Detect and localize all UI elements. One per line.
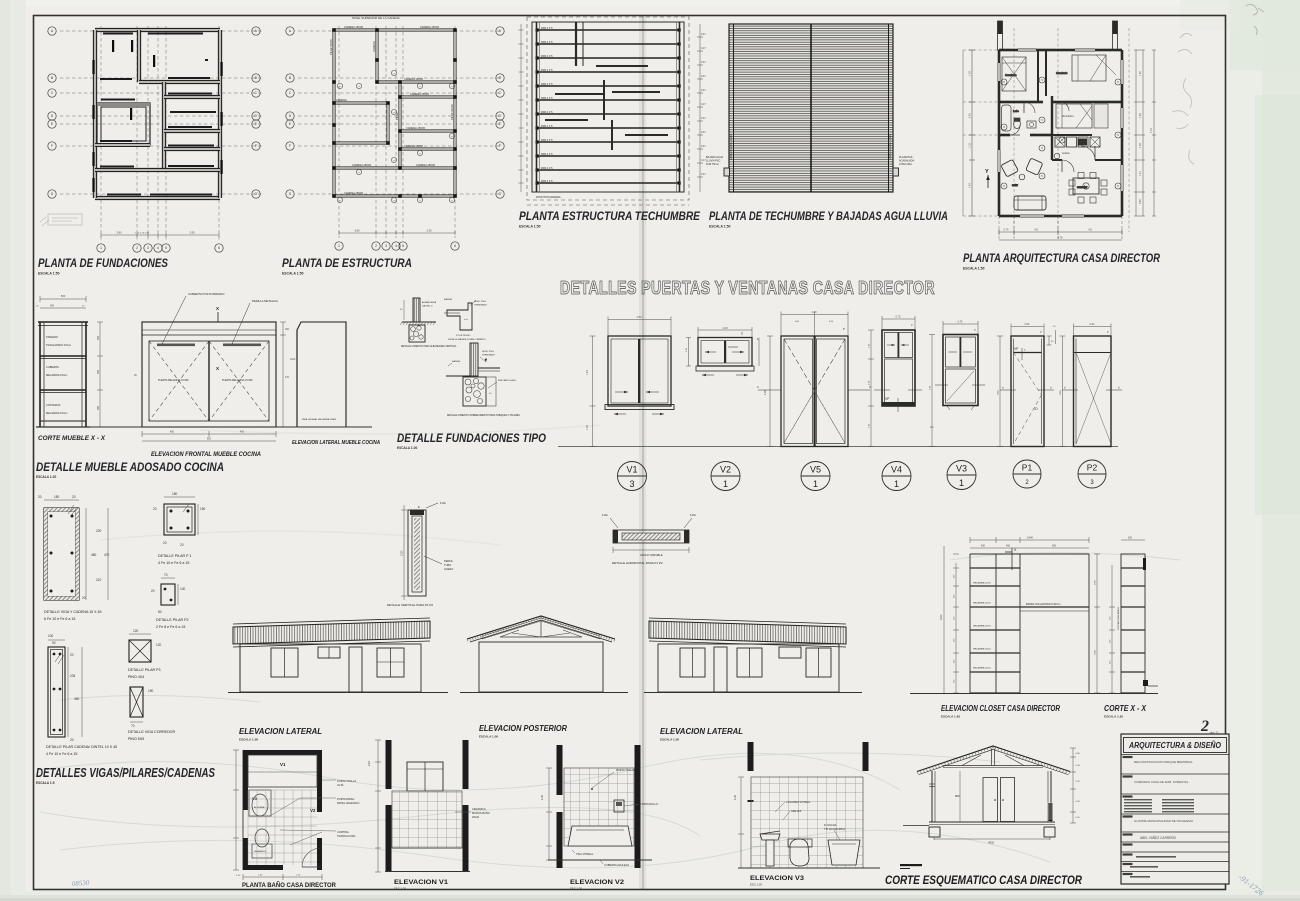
svg-text:0.47: 0.47 <box>701 61 706 64</box>
svg-text:DETALLE VIGA CORREDOR: DETALLE VIGA CORREDOR <box>128 730 175 734</box>
svg-text:ESCALA 1:50: ESCALA 1:50 <box>38 272 60 276</box>
svg-text:ELEVACION FRONTAL MUEBLE COCIN: ELEVACION FRONTAL MUEBLE COCINA <box>151 452 261 458</box>
svg-text:PERILLA METALICA: PERILLA METALICA <box>252 299 278 303</box>
svg-text:150: 150 <box>200 507 206 511</box>
svg-text:2.95: 2.95 <box>189 231 195 235</box>
svg-text:ABEL YAÑEZ CARREÑO: ABEL YAÑEZ CARREÑO <box>1140 835 1177 840</box>
svg-text:TABLERO: TABLERO <box>46 335 58 339</box>
svg-text:CUBIERTA AZULEJO: CUBIERTA AZULEJO <box>604 863 629 867</box>
svg-text:RADIER: RADIER <box>452 360 461 363</box>
svg-text:190: 190 <box>148 689 154 693</box>
svg-text:2: 2 <box>1200 718 1209 735</box>
svg-text:PAR 2 X 5: PAR 2 X 5 <box>541 69 553 72</box>
svg-text:CADENA 15X45: CADENA 15X45 <box>344 25 363 29</box>
svg-text:PINO 5X5: PINO 5X5 <box>128 737 144 741</box>
svg-text:90: 90 <box>52 641 56 645</box>
svg-text:P: P <box>843 327 845 331</box>
svg-text:900: 900 <box>1052 545 1057 548</box>
svg-text:VP: VP <box>1014 347 1018 351</box>
svg-text:ELEVACION V1: ELEVACION V1 <box>394 880 449 886</box>
svg-text:0.35x3.66m: 0.35x3.66m <box>899 163 912 166</box>
svg-text:900: 900 <box>207 438 212 441</box>
svg-text:ILUSTRE MUNICIPALIDAD DE PI: ILUSTRE MUNICIPALIDAD DE PICHILEMU <box>1134 819 1193 823</box>
svg-text:POLIETILENO: POLIETILENO <box>456 335 471 337</box>
svg-text:150: 150 <box>172 492 178 496</box>
svg-text:PAR 2 X 5: PAR 2 X 5 <box>541 153 553 156</box>
svg-text:A': A' <box>255 29 258 33</box>
svg-text:350: 350 <box>97 405 100 410</box>
svg-text:MELAMINA 15mm: MELAMINA 15mm <box>46 373 67 377</box>
svg-text:comedor: comedor <box>1077 185 1087 189</box>
svg-text:PLANTA BAÑO CASA DIRECTOR: PLANTA BAÑO CASA DIRECTOR <box>242 882 337 889</box>
svg-text:CADENA 15X45: CADENA 15X45 <box>406 126 425 130</box>
svg-text:20: 20 <box>180 543 184 547</box>
svg-text:JGTA: JGTA <box>337 783 344 787</box>
svg-text:2: 2 <box>741 332 743 336</box>
svg-text:baño: baño <box>1013 109 1019 113</box>
svg-text:1: 1 <box>723 479 728 489</box>
svg-text:E: E <box>418 505 420 509</box>
svg-text:PILAR 15X15: PILAR 15X15 <box>450 104 454 120</box>
svg-text:450: 450 <box>170 431 175 434</box>
svg-text:1050: 1050 <box>1095 579 1097 585</box>
svg-text:DETALLE PILAR P3: DETALLE PILAR P3 <box>128 668 161 672</box>
svg-text:cocina: cocina <box>1062 151 1070 155</box>
svg-text:FRONTON MADERA: FRONTON MADERA <box>536 195 561 199</box>
svg-text:NIVEL PISO: NIVEL PISO <box>482 351 494 353</box>
svg-text:0.47: 0.47 <box>701 47 706 50</box>
svg-text:PAR 2 X 5: PAR 2 X 5 <box>541 111 553 114</box>
svg-text:70: 70 <box>164 573 168 577</box>
svg-text:1: 1 <box>338 244 340 248</box>
svg-text:450: 450 <box>240 431 245 434</box>
svg-text:1.60: 1.60 <box>811 310 817 314</box>
svg-text:V3: V3 <box>956 464 967 474</box>
svg-text:1.50: 1.50 <box>636 315 642 319</box>
svg-text:DETALLE VERTICAL PARA P1 P2: DETALLE VERTICAL PARA P1 P2 <box>387 603 433 607</box>
svg-text:50: 50 <box>158 610 162 614</box>
svg-text:PAR 2 X 5: PAR 2 X 5 <box>541 83 553 86</box>
svg-text:6 Fe 10 e Fe 6 a 15: 6 Fe 10 e Fe 6 a 15 <box>44 617 75 621</box>
svg-text:B: B <box>51 76 53 80</box>
svg-text:ARQUITECTURA & DISEÑO: ARQUITECTURA & DISEÑO <box>1128 741 1221 750</box>
svg-text:COSTADO MELAMINA: COSTADO MELAMINA <box>1117 607 1120 630</box>
svg-text:CADENA: CADENA <box>372 41 376 52</box>
svg-text:ESCALA 1:50: ESCALA 1:50 <box>519 225 541 229</box>
svg-text:X: X <box>216 306 219 311</box>
svg-text:E: E <box>289 122 291 126</box>
svg-text:PERFIL: PERFIL <box>444 559 454 563</box>
svg-text:LAVAMANOS: LAVAMANOS <box>254 850 267 853</box>
svg-text:CORTE MUEBLE X - X: CORTE MUEBLE X - X <box>38 435 106 442</box>
svg-text:4.8: 4.8 <box>1034 229 1038 232</box>
svg-text:0.47: 0.47 <box>701 145 706 148</box>
svg-text:CADENA 15X45: CADENA 15X45 <box>410 92 429 96</box>
svg-text:T.B. ECONOMICA: T.B. ECONOMICA <box>824 827 845 831</box>
svg-text:470: 470 <box>285 376 290 379</box>
svg-text:DETALLE PILAR CADENA/ DINTEL: DETALLE PILAR CADENA/ DINTEL 10 X 45 <box>46 745 117 749</box>
svg-text:DETALLE PILAR P2: DETALLE PILAR P2 <box>156 618 189 622</box>
svg-text:220: 220 <box>96 529 102 533</box>
svg-text:2.95: 2.95 <box>426 229 432 233</box>
svg-text:MELAMINA 15mm: MELAMINA 15mm <box>973 648 991 651</box>
svg-text:V1: V1 <box>626 465 637 475</box>
svg-text:ESCALA 1:20: ESCALA 1:20 <box>941 715 960 719</box>
svg-text:ELEVACION CLOSET CASA DIRECTOR: ELEVACION CLOSET CASA DIRECTOR <box>941 704 1060 713</box>
svg-text:D': D' <box>255 114 258 118</box>
svg-text:PLANTA DE TECHUMBRE Y BAJADAS: PLANTA DE TECHUMBRE Y BAJADAS AGUA LLUVI… <box>709 211 948 223</box>
svg-text:TERMINADO: TERMINADO <box>474 304 487 307</box>
svg-text:1.20: 1.20 <box>540 794 544 800</box>
svg-text:ESC 1:20: ESC 1:20 <box>394 887 406 891</box>
svg-text:dormitorio: dormitorio <box>1056 71 1068 75</box>
svg-text:1.40: 1.40 <box>969 183 972 188</box>
svg-text:PAR 2 X 5: PAR 2 X 5 <box>541 139 553 142</box>
svg-text:TAPA LATERAL MELAMINA 15MM: TAPA LATERAL MELAMINA 15MM <box>302 418 336 421</box>
svg-text:PILAR: PILAR <box>395 112 399 120</box>
svg-text:0.47: 0.47 <box>701 131 706 134</box>
svg-text:ELEVACION POSTERIOR: ELEVACION POSTERIOR <box>479 724 567 733</box>
svg-text:PAR 2 X 5: PAR 2 X 5 <box>541 125 553 128</box>
svg-text:DETALLE PILAR P 1: DETALLE PILAR P 1 <box>158 554 191 558</box>
svg-text:TUBO: TUBO <box>444 563 451 567</box>
svg-text:CORTINA: CORTINA <box>337 830 349 834</box>
svg-text:20: 20 <box>70 653 74 657</box>
svg-text:1.10 0.75 0.96: 1.10 0.75 0.96 <box>135 233 150 235</box>
svg-text:CADENA: CADENA <box>336 98 347 102</box>
svg-text:350: 350 <box>97 369 100 374</box>
svg-text:08530: 08530 <box>72 879 91 888</box>
svg-text:ESC 1:20: ESC 1:20 <box>570 887 582 891</box>
svg-text:0.70: 0.70 <box>896 316 901 319</box>
svg-text:PAR 2 X 5: PAR 2 X 5 <box>541 41 553 44</box>
svg-text:PLANTA ESTRUCTURA TECHUMBRE: PLANTA ESTRUCTURA TECHUMBRE <box>519 211 700 223</box>
svg-text:0.90: 0.90 <box>1090 323 1095 326</box>
svg-text:ESCALA 1:50: ESCALA 1:50 <box>963 267 985 271</box>
svg-text:P2: P2 <box>1087 463 1098 473</box>
svg-text:CADENA 15X45: CADENA 15X45 <box>404 77 423 81</box>
svg-text:PORTA TOALLA: PORTA TOALLA <box>337 779 356 783</box>
svg-text:CADENA 15X45: CADENA 15X45 <box>404 144 423 148</box>
svg-text:E': E' <box>255 122 258 126</box>
svg-text:20: 20 <box>153 507 157 511</box>
svg-text:2.10: 2.10 <box>367 760 371 766</box>
svg-text:0.47: 0.47 <box>701 117 706 120</box>
svg-text:COLUMNA VITREAL: COLUMNA VITREAL <box>786 800 811 804</box>
svg-text:VP: VP <box>885 397 889 401</box>
svg-text:PAR 2 X 5: PAR 2 X 5 <box>541 167 553 170</box>
svg-text:120: 120 <box>156 643 162 647</box>
svg-text:DETALLE CIMIENTO PARA ALBANILE: DETALLE CIMIENTO PARA ALBANILERIA VERTIC… <box>401 345 457 348</box>
svg-text:0.94: 0.94 <box>1139 199 1142 204</box>
svg-text:CADENA 15X45: CADENA 15X45 <box>352 163 371 167</box>
svg-text:2: 2 <box>136 246 138 250</box>
svg-text:ESCALA 1:20: ESCALA 1:20 <box>397 446 417 450</box>
svg-text:/O: /O <box>1034 407 1038 411</box>
svg-text:V3: V3 <box>252 796 258 801</box>
svg-text:RECONSTRUCCION PARQUE MEMORIAL: RECONSTRUCCION PARQUE MEMORIAL <box>1134 760 1193 764</box>
svg-text:DETALLE RADIER SOBRE CIMIENTO: DETALLE RADIER SOBRE CIMIENTO <box>448 338 486 341</box>
svg-text:450: 450 <box>74 697 80 701</box>
svg-text:ESCALA 1:50: ESCALA 1:50 <box>239 738 258 742</box>
svg-text:ELEVACION LATERAL: ELEVACION LATERAL <box>239 727 322 736</box>
svg-text:ELEVACION V3: ELEVACION V3 <box>750 876 805 882</box>
svg-text:BARRA COLGADORA D=32mm: BARRA COLGADORA D=32mm <box>1026 603 1060 606</box>
svg-text:1.00: 1.00 <box>586 425 589 430</box>
svg-text:MELAMINA 15mm: MELAMINA 15mm <box>973 667 991 670</box>
svg-text:ESCALA 1:50: ESCALA 1:50 <box>660 738 679 742</box>
svg-text:100: 100 <box>48 634 54 638</box>
svg-text:PUERTA MELAMINA 15 MM: PUERTA MELAMINA 15 MM <box>158 379 188 382</box>
svg-text:20: 20 <box>72 495 76 499</box>
svg-text:TRASLAPADO 15mm: TRASLAPADO 15mm <box>46 343 71 347</box>
svg-text:1: 1 <box>894 479 899 489</box>
svg-text:PAR 2 X 5: PAR 2 X 5 <box>541 27 553 30</box>
svg-text:TERMINADO: TERMINADO <box>482 354 495 357</box>
svg-text:PAPEL HIGIENICO: PAPEL HIGIENICO <box>337 801 359 805</box>
svg-text:RADIER: RADIER <box>444 298 453 301</box>
svg-text:CUBIERTA POSTFORMADO: CUBIERTA POSTFORMADO <box>188 292 225 296</box>
svg-text:CORTE ESQUEMATICO CASA DIRECTO: CORTE ESQUEMATICO CASA DIRECTOR <box>885 873 1082 887</box>
svg-text:6: 6 <box>454 244 456 248</box>
svg-text:E': E' <box>499 122 502 126</box>
svg-text:1.25: 1.25 <box>1139 113 1142 118</box>
svg-text:1: 1 <box>100 246 102 250</box>
svg-text:1040: 1040 <box>290 358 296 361</box>
svg-text:Y: Y <box>985 169 989 175</box>
svg-text:1.15: 1.15 <box>969 143 972 148</box>
svg-text:dormitorio: dormitorio <box>1062 114 1074 118</box>
svg-text:800: 800 <box>955 794 960 798</box>
svg-text:1: 1 <box>813 479 818 489</box>
svg-text:CADENA 15X45: CADENA 15X45 <box>420 25 439 29</box>
svg-text:ACERO: ACERO <box>444 567 453 571</box>
svg-text:V4: V4 <box>891 465 902 475</box>
svg-text:9.78: 9.78 <box>1058 237 1063 240</box>
svg-text:COSTADOS: COSTADOS <box>46 403 61 407</box>
svg-text:1640: 1640 <box>1027 536 1033 540</box>
svg-text:ESC 1:20: ESC 1:20 <box>750 883 762 887</box>
svg-text:PAR 2 X 5: PAR 2 X 5 <box>541 97 553 100</box>
svg-text:CADENA 15X45: CADENA 15X45 <box>344 191 363 195</box>
svg-text:MELAMINA 15mm: MELAMINA 15mm <box>973 582 991 585</box>
svg-text:350: 350 <box>97 335 100 340</box>
svg-text:PORTA PAPEL: PORTA PAPEL <box>337 797 355 801</box>
svg-text:2100: 2100 <box>401 550 404 556</box>
svg-text:B: B <box>289 76 291 80</box>
svg-text:3: 3 <box>385 244 387 248</box>
svg-text:1.52: 1.52 <box>1139 71 1142 76</box>
svg-text:20: 20 <box>70 738 74 742</box>
svg-text:0.75: 0.75 <box>958 321 963 324</box>
svg-text:V2: V2 <box>720 465 731 475</box>
svg-text:C': C' <box>499 91 502 95</box>
svg-text:F': F' <box>255 144 258 148</box>
svg-text:4950: 4950 <box>988 841 995 845</box>
svg-text:2: 2 <box>375 244 377 248</box>
svg-text:PLANTA ARQUITECTURA CASA DIREC: PLANTA ARQUITECTURA CASA DIRECTOR <box>963 253 1161 265</box>
svg-text:500: 500 <box>61 294 66 298</box>
svg-text:ANCHO VARIABLE: ANCHO VARIABLE <box>640 553 663 557</box>
svg-text:FIJA: FIJA <box>602 513 608 517</box>
svg-text:D': D' <box>499 114 502 118</box>
svg-text:2m: 2m <box>930 425 934 429</box>
svg-text:CANAL AGUAS LLUVIA: CANAL AGUAS LLUVIA <box>730 134 733 160</box>
svg-text:0.47: 0.47 <box>701 75 706 78</box>
svg-text:20: 20 <box>163 541 167 545</box>
svg-text:C: C <box>757 385 759 389</box>
svg-text:CERAMICA: CERAMICA <box>472 807 486 811</box>
svg-text:20: 20 <box>38 495 42 499</box>
svg-text:CORTE X - X: CORTE X - X <box>1104 704 1147 713</box>
svg-text:ALGEBRA: ALGEBRA <box>254 806 265 809</box>
svg-text:20: 20 <box>82 596 86 600</box>
svg-text:20x20: 20x20 <box>472 815 480 819</box>
svg-text:ESCALA 1:5: ESCALA 1:5 <box>36 781 55 785</box>
svg-text:A': A' <box>499 29 502 33</box>
svg-text:ESCALA 1:20: ESCALA 1:20 <box>36 475 56 479</box>
svg-text:X: X <box>216 366 219 371</box>
svg-text:PAR 2 X 5: PAR 2 X 5 <box>541 180 553 183</box>
svg-text:VIVIENDAS CASA DE ADM. FORES: VIVIENDAS CASA DE ADM. FORESTAL <box>1134 780 1189 784</box>
svg-text:20: 20 <box>151 589 155 593</box>
svg-text:DETALLE MUEBLE ADOSADO COCINA: DETALLE MUEBLE ADOSADO COCINA <box>36 460 224 474</box>
svg-text:150: 150 <box>54 495 60 499</box>
svg-text:NIVEL PISO: NIVEL PISO <box>474 301 486 303</box>
svg-text:ELEVACION LATERAL: ELEVACION LATERAL <box>660 727 743 736</box>
svg-text:DETALLES VIGAS/PILARES/CADENAS: DETALLES VIGAS/PILARES/CADENAS <box>36 766 216 780</box>
svg-text:300: 300 <box>285 328 290 331</box>
svg-text:TRANSLUCIDA: TRANSLUCIDA <box>337 834 356 838</box>
svg-text:1350: 1350 <box>1095 649 1097 655</box>
svg-text:DETALLE CIMIENTO SOBRECIMIENT: DETALLE CIMIENTO SOBRECIMIENTO PARA TABI… <box>447 414 520 417</box>
svg-text:DETALLE HORIZONTAL PARA P1: DETALLE HORIZONTAL PARA P1 P2 <box>612 561 663 565</box>
svg-text:0.47: 0.47 <box>701 173 706 176</box>
svg-text:3.80: 3.80 <box>116 231 122 235</box>
svg-text:2400: 2400 <box>940 614 943 620</box>
svg-text:1.21: 1.21 <box>1139 171 1142 176</box>
svg-text:B': B' <box>255 76 258 80</box>
svg-text:PINO 4X4: PINO 4X4 <box>128 675 144 679</box>
svg-text:PORTA TOALLA: PORTA TOALLA <box>616 768 635 772</box>
svg-text:B': B' <box>499 76 502 80</box>
svg-text:FIJA: FIJA <box>440 501 446 505</box>
svg-text:0.80: 0.80 <box>1025 323 1030 326</box>
svg-text:ESCALA 1:20: ESCALA 1:20 <box>1104 715 1123 719</box>
svg-text:2050: 2050 <box>998 389 1000 395</box>
svg-text:PUERTA MELAMINA 15 MM: PUERTA MELAMINA 15 MM <box>222 379 252 382</box>
svg-text:ALBANILERIA: ALBANILERIA <box>422 301 437 304</box>
svg-text:ESCALA 1:50: ESCALA 1:50 <box>282 272 304 276</box>
svg-text:F: F <box>289 144 291 148</box>
svg-text:C': C' <box>255 91 258 95</box>
svg-text:0.47: 0.47 <box>701 33 706 36</box>
svg-text:TINA VITREAL: TINA VITREAL <box>576 852 594 856</box>
svg-text:MELAMINA 15mm: MELAMINA 15mm <box>46 411 67 415</box>
svg-text:EMPLANTILLADO: EMPLANTILLADO <box>498 379 516 382</box>
svg-text:E: E <box>51 122 53 126</box>
svg-text:2 Fe 8 e Fe 6 a 15: 2 Fe 8 e Fe 6 a 15 <box>156 625 185 629</box>
svg-text:1.30: 1.30 <box>969 71 972 76</box>
svg-text:5: 5 <box>165 246 167 250</box>
svg-text:1.20: 1.20 <box>733 794 737 800</box>
svg-text:4.8: 4.8 <box>1088 229 1092 232</box>
svg-text:F': F' <box>499 144 502 148</box>
svg-text:450: 450 <box>50 305 55 308</box>
svg-text:100: 100 <box>180 587 186 591</box>
svg-text:70: 70 <box>131 724 135 728</box>
svg-text:ELEVACION V2: ELEVACION V2 <box>570 880 625 886</box>
svg-text:PAR 2 X 5: PAR 2 X 5 <box>541 55 553 58</box>
svg-text:D=Ø 75mm: D=Ø 75mm <box>706 163 719 166</box>
svg-text:3: 3 <box>147 246 149 250</box>
svg-text:DETALLE VIGA Y CADENA 15 X 45: DETALLE VIGA Y CADENA 15 X 45 <box>44 610 102 614</box>
svg-text:0.47: 0.47 <box>701 103 706 106</box>
svg-text:LADRILLO: LADRILLO <box>422 305 433 308</box>
svg-text:2050: 2050 <box>1060 389 1062 395</box>
svg-text:R. DUCHA: R. DUCHA <box>824 823 837 827</box>
svg-text:5: 5 <box>402 244 404 248</box>
svg-text:4 Fe 10 e Fe 6 a 15: 4 Fe 10 e Fe 6 a 15 <box>46 752 77 756</box>
svg-text:PLANTA DE ESTRUCTURA: PLANTA DE ESTRUCTURA <box>282 258 412 270</box>
svg-text:ESCALA 1:50: ESCALA 1:50 <box>709 225 731 229</box>
svg-text:MELAMINA 15mm: MELAMINA 15mm <box>973 625 991 628</box>
svg-text:ESCALA 1:50: ESCALA 1:50 <box>479 735 498 739</box>
svg-text:4: 4 <box>157 246 159 250</box>
svg-text:ELEVACION LATERAL MUEBLE COCIN: ELEVACION LATERAL MUEBLE COCINA <box>292 440 380 446</box>
svg-text:G': G' <box>498 192 501 196</box>
svg-text:120: 120 <box>133 629 139 633</box>
svg-text:1.20: 1.20 <box>586 370 589 375</box>
svg-text:470: 470 <box>104 553 110 557</box>
svg-text:6: 6 <box>218 246 220 250</box>
svg-text:MELAMINA 15mm: MELAMINA 15mm <box>973 602 991 605</box>
svg-text:3: 3 <box>629 479 634 489</box>
svg-text:1.00: 1.00 <box>722 326 728 330</box>
svg-text:G': G' <box>254 192 257 196</box>
svg-text:3.80: 3.80 <box>354 229 360 233</box>
svg-text:CANAL AGUAS LLUVIA: CANAL AGUAS LLUVIA <box>889 134 892 160</box>
svg-text:V1: V1 <box>280 762 286 767</box>
svg-text:210: 210 <box>96 578 102 582</box>
svg-text:CADENA 15X45: CADENA 15X45 <box>416 163 435 167</box>
svg-text:P1: P1 <box>1022 463 1033 473</box>
svg-text:205: 205 <box>70 674 76 678</box>
svg-text:NIVEL SUPERIOR DE LA CADENA: NIVEL SUPERIOR DE LA CADENA <box>352 16 400 20</box>
svg-text:PILAR 15X15: PILAR 15X15 <box>329 39 333 55</box>
svg-text:F: F <box>51 144 53 148</box>
svg-text:480: 480 <box>91 553 97 557</box>
svg-text:1: 1 <box>959 478 964 488</box>
svg-text:CUBIERTA: CUBIERTA <box>46 365 59 369</box>
svg-text:500: 500 <box>1128 537 1133 540</box>
svg-text:V5: V5 <box>810 465 821 475</box>
svg-text:DETALLE FUNDACIONES TIPO: DETALLE FUNDACIONES TIPO <box>397 431 547 445</box>
svg-text:FIJA: FIJA <box>690 513 696 517</box>
svg-text:7.10: 7.10 <box>1150 128 1153 133</box>
svg-text:estar: estar <box>1012 183 1018 187</box>
svg-text:4: 4 <box>395 244 397 248</box>
svg-text:DETALLES PUERTAS Y VENTANAS CA: DETALLES PUERTAS Y VENTANAS CASA DIRECTO… <box>560 277 935 298</box>
svg-text:PORTA ROLLO: PORTA ROLLO <box>640 802 658 806</box>
svg-text:2.45: 2.45 <box>969 113 972 118</box>
svg-text:4 Fe 10 e Fe 6 a 15: 4 Fe 10 e Fe 6 a 15 <box>158 561 189 565</box>
svg-text:2.00: 2.00 <box>764 390 767 395</box>
svg-text:0.47: 0.47 <box>701 89 706 92</box>
svg-text:PLANTA DE FUNDACIONES: PLANTA DE FUNDACIONES <box>38 258 168 270</box>
svg-text:0.74: 0.74 <box>1004 229 1009 232</box>
svg-text:1.03: 1.03 <box>1139 143 1142 148</box>
